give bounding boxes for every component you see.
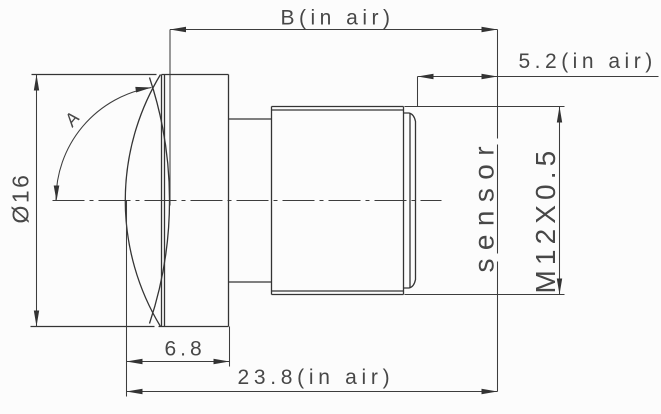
svg-text:23.8(in air): 23.8(in air) — [238, 366, 395, 389]
svg-text:5.2(in air): 5.2(in air) — [519, 50, 657, 73]
svg-text:M12X0.5: M12X0.5 — [530, 146, 561, 294]
svg-text:sensor: sensor — [469, 138, 500, 272]
svg-text:A: A — [60, 108, 84, 131]
svg-text:6.8: 6.8 — [165, 338, 206, 361]
svg-text:Ø16: Ø16 — [8, 173, 34, 224]
svg-text:B(in air): B(in air) — [281, 7, 395, 30]
